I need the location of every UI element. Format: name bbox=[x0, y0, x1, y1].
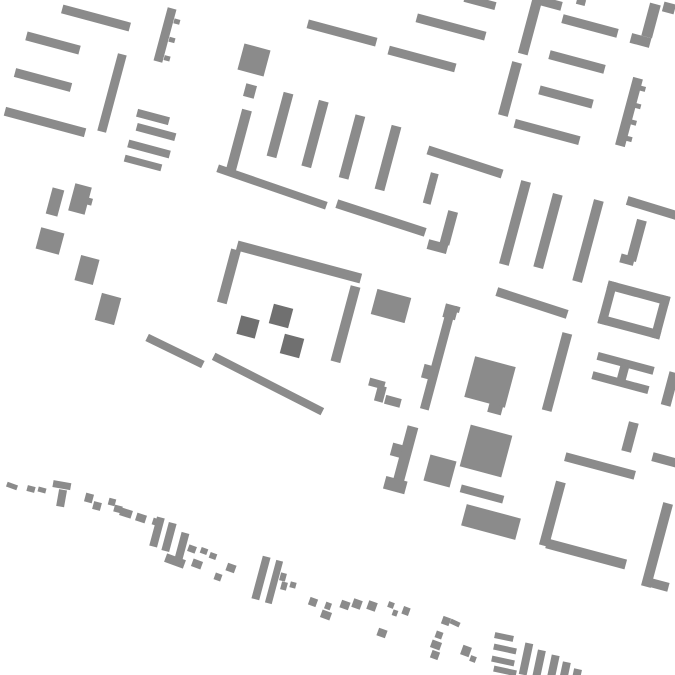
band-block bbox=[441, 616, 451, 626]
building-part bbox=[617, 365, 629, 381]
band-block bbox=[84, 493, 94, 504]
building-part bbox=[532, 649, 546, 675]
building-part bbox=[243, 83, 257, 98]
band-block bbox=[187, 544, 197, 553]
band-block bbox=[460, 645, 472, 657]
building-part bbox=[168, 37, 175, 43]
step-building bbox=[365, 378, 405, 408]
building-part bbox=[494, 632, 514, 642]
slab-bar bbox=[388, 46, 457, 73]
building-part bbox=[97, 53, 126, 133]
j-building bbox=[630, 0, 661, 48]
building-part bbox=[384, 395, 402, 408]
building-part bbox=[320, 610, 332, 621]
band-block bbox=[308, 597, 318, 607]
band-block bbox=[289, 581, 296, 588]
l-building bbox=[641, 502, 675, 592]
building-part bbox=[493, 666, 517, 675]
building-part bbox=[430, 640, 442, 651]
band-block bbox=[435, 631, 444, 640]
building-part bbox=[136, 123, 177, 141]
band-block bbox=[214, 573, 223, 582]
band-block bbox=[430, 650, 440, 660]
building-part bbox=[449, 619, 460, 628]
building-part bbox=[641, 3, 660, 39]
band-block bbox=[376, 628, 387, 639]
building-part bbox=[200, 547, 209, 555]
building-part bbox=[351, 598, 363, 610]
band-block bbox=[469, 655, 477, 663]
building-part bbox=[491, 656, 515, 667]
building-part bbox=[646, 577, 670, 591]
building-part bbox=[641, 502, 673, 588]
slab-bar bbox=[335, 199, 426, 236]
building-part bbox=[371, 289, 412, 323]
building-part bbox=[513, 119, 580, 145]
street-bar bbox=[212, 353, 324, 416]
building-part bbox=[538, 86, 593, 109]
building-part bbox=[548, 50, 605, 73]
edge-bar bbox=[464, 0, 497, 10]
band-block bbox=[324, 602, 332, 611]
square-block bbox=[423, 454, 456, 487]
band-block bbox=[200, 547, 209, 555]
band-bar bbox=[546, 654, 559, 675]
corner-l-building bbox=[538, 481, 642, 570]
building-part bbox=[464, 356, 515, 407]
edge-bar bbox=[576, 0, 586, 6]
building-part bbox=[542, 332, 572, 412]
band-block bbox=[225, 563, 236, 574]
block bbox=[68, 183, 96, 215]
slab-bar bbox=[4, 107, 87, 137]
tower-bar bbox=[498, 61, 522, 117]
band-bar bbox=[532, 649, 546, 675]
building-part bbox=[427, 172, 438, 188]
ladder-bar bbox=[491, 656, 515, 667]
tower-bar bbox=[226, 109, 252, 171]
ladder-bar bbox=[493, 666, 517, 675]
cross-building bbox=[381, 423, 422, 494]
slab-bar bbox=[25, 32, 80, 55]
building-part bbox=[339, 600, 350, 611]
building-part bbox=[280, 581, 288, 590]
band-block bbox=[279, 572, 287, 581]
edge-block bbox=[662, 2, 675, 15]
building-part bbox=[119, 507, 133, 518]
building-part bbox=[301, 100, 328, 168]
block bbox=[371, 289, 412, 323]
building-part bbox=[387, 601, 395, 609]
building-part bbox=[564, 452, 636, 479]
building-part bbox=[236, 315, 259, 338]
building-part bbox=[519, 643, 533, 675]
building-part bbox=[662, 2, 675, 15]
building-part bbox=[149, 516, 164, 547]
building-part bbox=[46, 187, 65, 216]
building-part bbox=[124, 155, 163, 172]
band-block bbox=[401, 606, 410, 616]
building-part bbox=[625, 136, 632, 142]
building-part bbox=[161, 522, 176, 552]
band-bar bbox=[175, 532, 190, 560]
ladder-bar bbox=[494, 632, 514, 642]
building-part bbox=[420, 314, 454, 411]
building-part bbox=[308, 597, 318, 607]
building-part bbox=[460, 425, 513, 478]
band-block bbox=[135, 513, 147, 524]
band-block bbox=[351, 598, 363, 610]
building-part bbox=[84, 493, 94, 504]
band-block bbox=[37, 487, 46, 494]
band-block bbox=[119, 507, 133, 518]
band-block bbox=[449, 619, 460, 628]
building-part bbox=[498, 61, 522, 117]
building-part bbox=[572, 668, 582, 675]
band-block bbox=[209, 552, 218, 560]
building-part bbox=[441, 616, 451, 626]
building-part bbox=[416, 13, 487, 40]
band-block bbox=[387, 601, 395, 609]
edge-bar bbox=[651, 452, 675, 467]
building-part bbox=[621, 421, 638, 453]
ladder-bar bbox=[493, 644, 517, 655]
tower-bar bbox=[533, 193, 562, 269]
building-part bbox=[561, 14, 618, 37]
band-bar bbox=[519, 643, 533, 675]
building-part bbox=[366, 600, 378, 612]
building-part bbox=[533, 193, 562, 269]
building-part bbox=[423, 454, 456, 487]
building-part bbox=[173, 18, 180, 24]
building-part bbox=[440, 210, 458, 245]
building-part bbox=[217, 248, 241, 304]
building-part bbox=[460, 484, 505, 503]
building-part bbox=[376, 628, 387, 639]
slab-bar bbox=[495, 287, 568, 318]
slab-bar bbox=[61, 5, 131, 32]
slab-bar bbox=[513, 119, 580, 145]
tower-bar bbox=[375, 125, 402, 191]
dark-square bbox=[236, 315, 259, 338]
building-part bbox=[460, 645, 472, 657]
square-block bbox=[237, 43, 270, 76]
block bbox=[461, 504, 521, 540]
slab-bar bbox=[538, 86, 593, 109]
slab-bar bbox=[460, 484, 505, 503]
building-part bbox=[639, 86, 646, 92]
building-part bbox=[634, 103, 641, 109]
building-part bbox=[269, 304, 293, 328]
building-part bbox=[135, 513, 147, 524]
hatch-bar bbox=[136, 123, 177, 141]
building-part bbox=[163, 55, 170, 61]
building-part bbox=[626, 219, 647, 262]
band-block bbox=[191, 559, 203, 570]
building-part bbox=[435, 631, 444, 640]
slab-bar bbox=[561, 14, 618, 37]
dark-square bbox=[269, 304, 293, 328]
block bbox=[46, 187, 65, 216]
building-part bbox=[469, 655, 477, 663]
building-part bbox=[236, 241, 362, 284]
building-part bbox=[74, 255, 99, 285]
building-part bbox=[280, 334, 304, 358]
building-part bbox=[493, 644, 517, 655]
building-part bbox=[401, 606, 410, 616]
band-block bbox=[92, 501, 102, 511]
building-part bbox=[225, 563, 236, 574]
building-part bbox=[92, 501, 102, 511]
band-bar bbox=[559, 661, 571, 675]
building-part bbox=[430, 650, 440, 660]
building-part bbox=[36, 227, 65, 254]
block bbox=[243, 83, 257, 98]
edge-bar bbox=[661, 371, 675, 406]
building-part bbox=[267, 92, 294, 158]
building-part bbox=[324, 602, 332, 611]
comb-building bbox=[615, 77, 648, 148]
building-part bbox=[546, 654, 559, 675]
tower-bar bbox=[499, 180, 531, 266]
building-part bbox=[572, 199, 603, 283]
building-part bbox=[26, 485, 35, 493]
building-part bbox=[630, 119, 637, 125]
building-part bbox=[127, 140, 171, 159]
building-part bbox=[52, 480, 71, 490]
big-square-building bbox=[462, 356, 516, 416]
band-block bbox=[6, 482, 18, 490]
band-bar bbox=[572, 668, 582, 675]
building-part bbox=[6, 482, 18, 490]
slab-bar bbox=[626, 196, 675, 220]
building-part bbox=[237, 43, 270, 76]
band-block bbox=[392, 609, 399, 616]
tower-bar bbox=[339, 114, 365, 179]
building-part bbox=[25, 32, 80, 55]
building-part bbox=[335, 199, 426, 236]
block bbox=[423, 185, 435, 204]
pole-building bbox=[413, 302, 460, 411]
band-block bbox=[26, 485, 35, 493]
street-bar bbox=[216, 164, 327, 209]
building-part bbox=[499, 180, 531, 266]
building-part bbox=[388, 46, 457, 73]
building-part bbox=[661, 371, 675, 406]
figure-ground-map-canvas bbox=[0, 0, 675, 675]
tower-bar bbox=[572, 199, 603, 283]
big-square-building bbox=[460, 425, 513, 478]
building-part bbox=[392, 609, 399, 616]
building-part bbox=[209, 552, 218, 560]
building-part bbox=[423, 185, 435, 204]
building-part bbox=[4, 107, 87, 137]
slab-bar bbox=[416, 13, 487, 40]
tower-bar bbox=[267, 92, 294, 158]
building-part bbox=[56, 489, 67, 507]
building-part bbox=[216, 164, 327, 209]
building-part bbox=[14, 68, 72, 92]
slab-bar bbox=[548, 50, 605, 73]
building-part bbox=[175, 532, 190, 560]
building-part bbox=[545, 538, 627, 569]
building-part bbox=[518, 0, 542, 55]
block bbox=[36, 227, 65, 254]
building-part bbox=[461, 504, 521, 540]
h-building bbox=[591, 352, 654, 394]
building-part bbox=[154, 7, 177, 62]
building-part bbox=[626, 196, 675, 220]
band-block bbox=[366, 600, 378, 612]
tower-bar bbox=[97, 53, 126, 133]
building-part bbox=[464, 0, 497, 10]
building-part bbox=[375, 125, 402, 191]
band-block bbox=[430, 640, 442, 651]
t-building bbox=[49, 480, 71, 508]
band-block bbox=[320, 610, 332, 621]
building-part bbox=[61, 5, 131, 32]
hatch-bar bbox=[127, 140, 171, 159]
hatch-bar bbox=[136, 109, 170, 125]
slab-bar bbox=[307, 19, 378, 46]
tower-bar bbox=[518, 0, 542, 55]
dark-square bbox=[280, 334, 304, 358]
block bbox=[95, 293, 122, 325]
building-part bbox=[289, 581, 296, 588]
slab-bar bbox=[564, 452, 636, 479]
building-part bbox=[427, 146, 504, 179]
band-block bbox=[280, 581, 288, 590]
building-part bbox=[226, 109, 252, 171]
comb-building bbox=[154, 7, 183, 64]
block bbox=[427, 172, 438, 188]
building-part bbox=[191, 559, 203, 570]
building-part bbox=[576, 0, 586, 6]
building-part bbox=[495, 287, 568, 318]
band-block bbox=[339, 600, 350, 611]
band-bar bbox=[149, 516, 164, 547]
building-part bbox=[307, 19, 378, 46]
slab-bar bbox=[14, 68, 72, 92]
figure-ground-map bbox=[0, 0, 675, 675]
building-part bbox=[559, 661, 571, 675]
building-part bbox=[279, 572, 287, 581]
tower-bar bbox=[301, 100, 328, 168]
building-part bbox=[95, 293, 122, 325]
building-part bbox=[136, 109, 170, 125]
tower-bar bbox=[621, 421, 638, 453]
building-part bbox=[37, 487, 46, 494]
building-part bbox=[651, 452, 675, 467]
building-part bbox=[339, 114, 365, 179]
building-part bbox=[187, 544, 197, 553]
building-part bbox=[145, 334, 204, 368]
street-bar bbox=[145, 334, 204, 368]
tower-bar bbox=[542, 332, 572, 412]
building-part bbox=[374, 385, 387, 403]
building-part bbox=[214, 573, 223, 582]
building-part bbox=[539, 481, 566, 547]
ring-courtyard-building bbox=[597, 280, 670, 339]
block bbox=[74, 255, 99, 285]
l-building bbox=[427, 207, 458, 254]
slab-bar bbox=[427, 146, 504, 179]
hatch-bar bbox=[124, 155, 163, 172]
building-part bbox=[331, 285, 361, 363]
band-bar bbox=[161, 522, 176, 552]
l-building bbox=[619, 217, 646, 266]
building-part bbox=[212, 353, 324, 416]
